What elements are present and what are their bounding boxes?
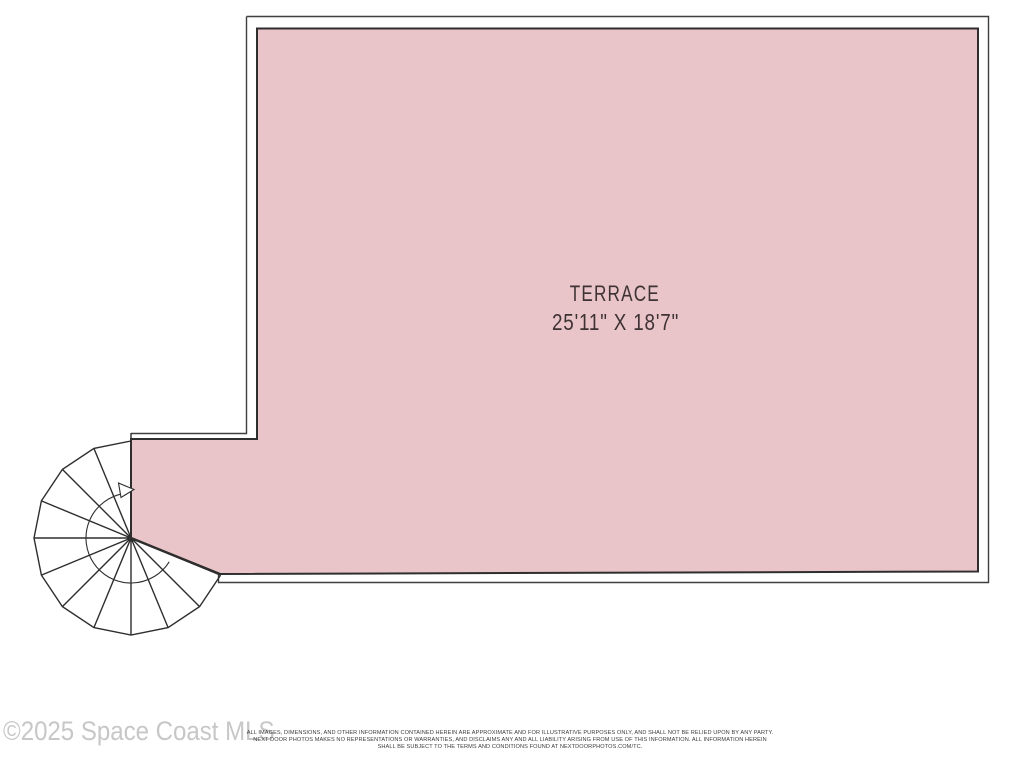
floorplan-page: TERRACE 25'11" X 18'7" ©2025 Space Coast…	[0, 0, 1024, 768]
room-label-text: TERRACE	[570, 281, 660, 307]
disclaimer-line-2: NEXT DOOR PHOTOS MAKES NO REPRESENTATION…	[0, 737, 1020, 744]
room-label: TERRACE	[465, 281, 765, 307]
disclaimer-line-3: SHALL BE SUBJECT TO THE TERMS AND CONDIT…	[0, 744, 1020, 751]
disclaimer: ALL IMAGES, DIMENSIONS, AND OTHER INFORM…	[0, 730, 1020, 751]
room-dimensions: 25'11" X 18'7"	[466, 309, 766, 336]
room-dimensions-text: 25'11" X 18'7"	[552, 309, 679, 336]
disclaimer-line-1: ALL IMAGES, DIMENSIONS, AND OTHER INFORM…	[0, 730, 1020, 737]
floorplan-drawing	[0, 0, 1024, 768]
